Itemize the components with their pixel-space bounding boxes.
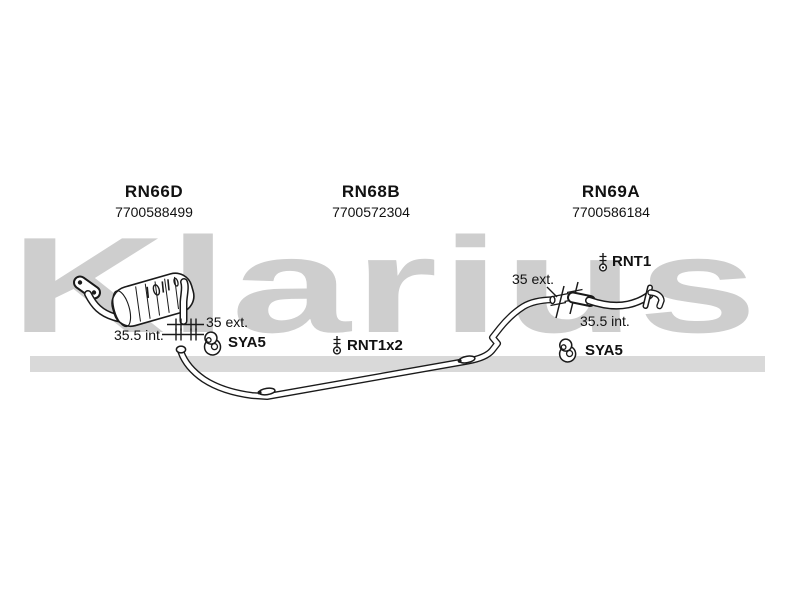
rear-joint-int-label: 35.5 int.	[580, 313, 630, 329]
part-number-rn69a: 7700586184	[556, 204, 666, 220]
part-code-rn66d: RN66D	[99, 182, 209, 202]
front-hanger-label: SYA5	[228, 334, 266, 351]
front-joint-ext-label: 35 ext.	[206, 314, 248, 330]
part-number-rn66d: 7700588499	[99, 204, 209, 220]
mid-clamp-label: RNT1x2	[347, 337, 403, 354]
part-code-rn68b: RN68B	[316, 182, 426, 202]
exhaust-diagram-canvas: Klarius	[0, 0, 800, 600]
brand-watermark-underline	[30, 356, 765, 372]
rear-clamp-label: RNT1	[612, 253, 651, 270]
part-number-rn68b: 7700572304	[316, 204, 426, 220]
rear-hanger-label: SYA5	[585, 342, 623, 359]
front-joint-int-label: 35.5 int.	[114, 327, 164, 343]
part-code-rn69a: RN69A	[556, 182, 666, 202]
rear-joint-ext-label: 35 ext.	[512, 271, 554, 287]
